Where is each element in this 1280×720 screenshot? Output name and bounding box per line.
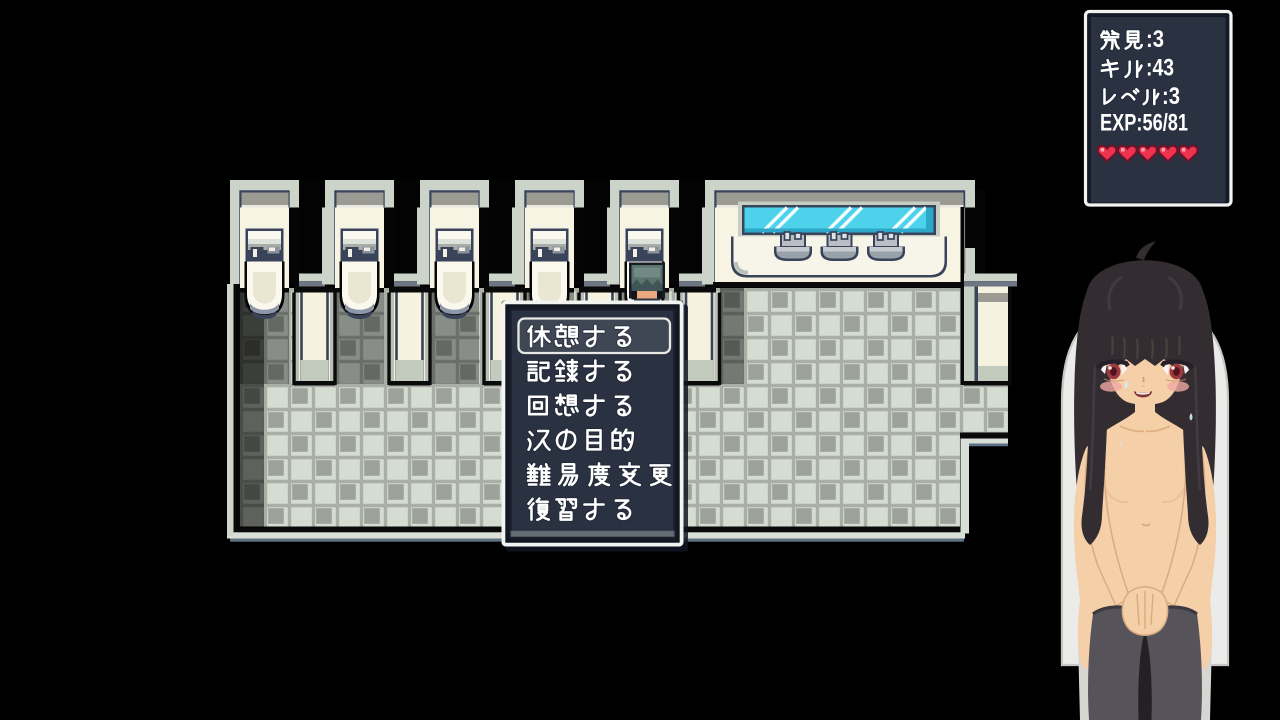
svg-text::3: :3 bbox=[1146, 26, 1164, 53]
svg-text::43: :43 bbox=[1146, 55, 1174, 82]
svg-text:EXP:56/81: EXP:56/81 bbox=[1100, 110, 1188, 137]
svg-text::3: :3 bbox=[1162, 83, 1180, 110]
